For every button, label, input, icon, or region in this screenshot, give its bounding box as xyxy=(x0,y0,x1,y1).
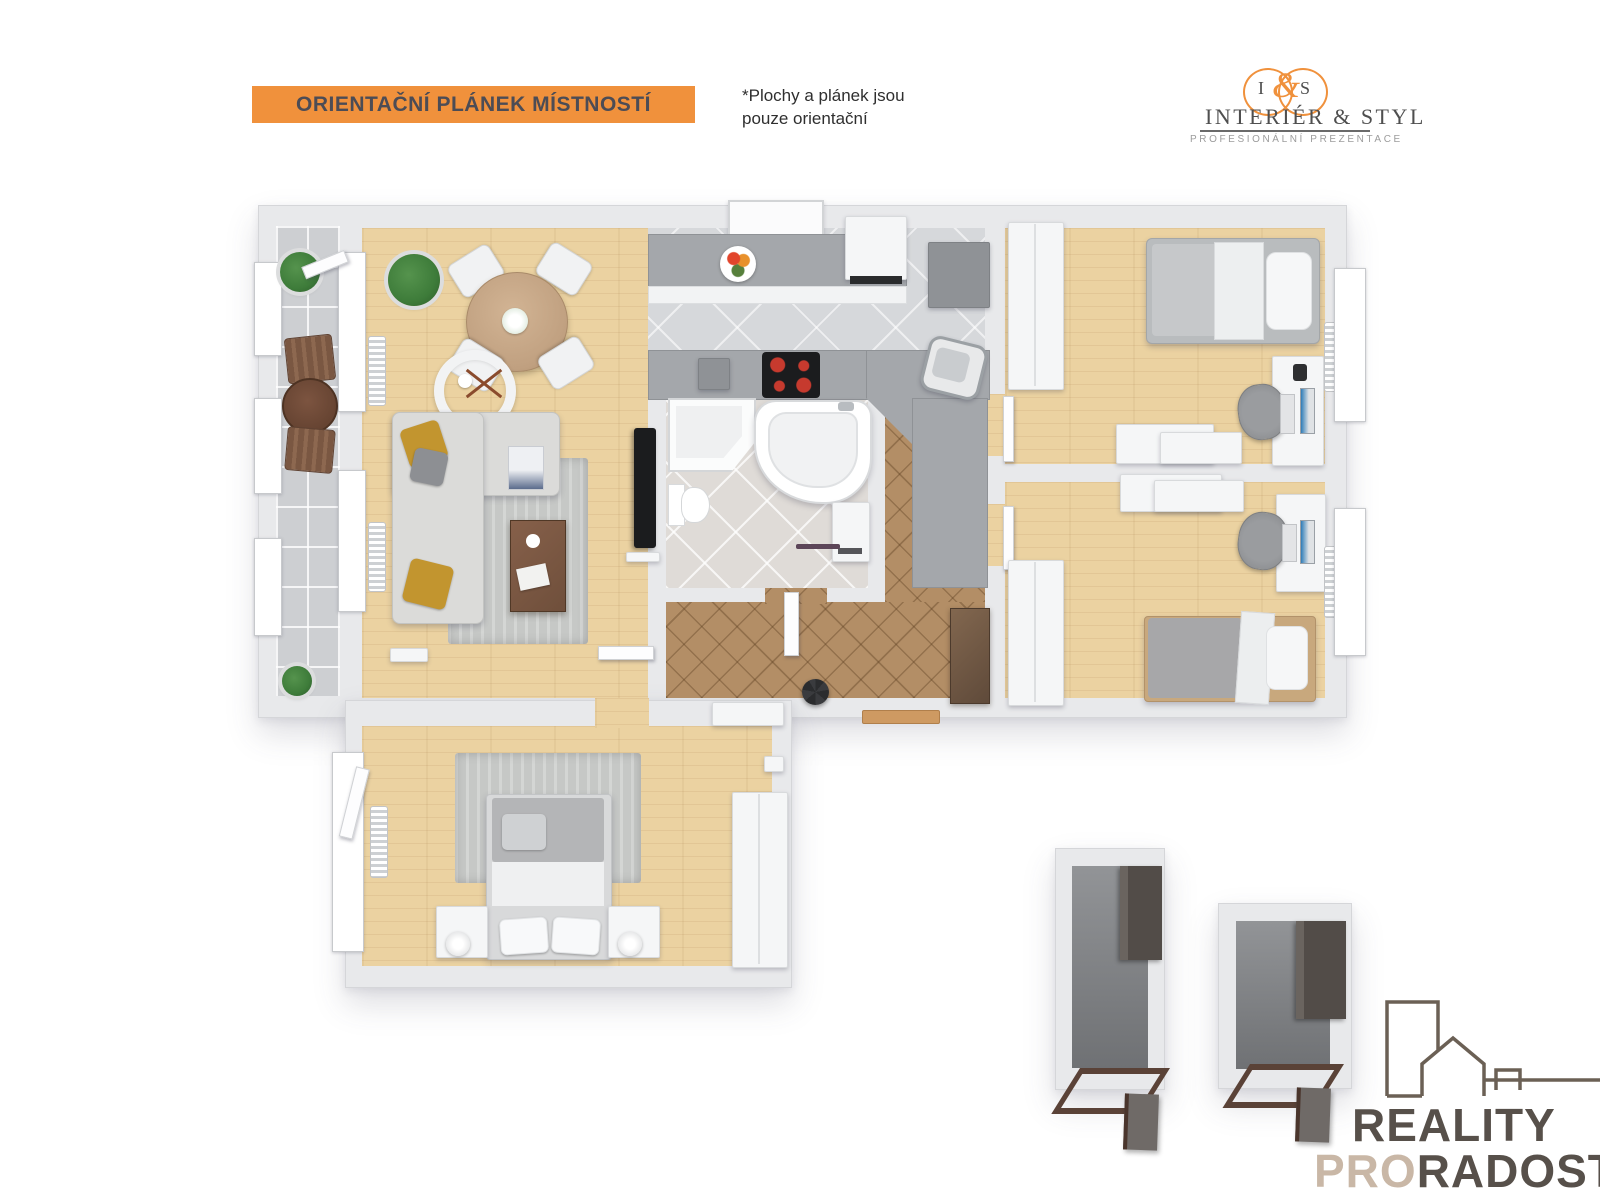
footer-brand-pro: PRO xyxy=(1314,1145,1417,1197)
sofa-pillow-gray xyxy=(409,447,449,487)
bedroom1-wardrobe xyxy=(1008,222,1064,390)
bedroom1-door-leaf xyxy=(1003,396,1014,462)
storage-unit-2-cabinet xyxy=(1296,921,1346,1019)
hall-coat-rack xyxy=(712,702,784,726)
bedroom1-wardrobe-split xyxy=(1034,224,1036,386)
bedroom1-blanket xyxy=(1214,242,1264,340)
kitchen-oven-unit xyxy=(845,216,907,280)
master-radiator xyxy=(370,806,388,878)
disclaimer-line-2: pouze orientační xyxy=(742,108,905,131)
storage-unit-1-doorleaf xyxy=(1123,1093,1159,1150)
divider-shelf-top-b xyxy=(1160,432,1242,464)
living-radiator-1 xyxy=(368,336,386,406)
fruit-bowl xyxy=(720,246,756,282)
hall-stool xyxy=(802,679,829,705)
floor-lamp-bulb xyxy=(458,374,472,388)
oven-handle xyxy=(850,276,902,284)
bedroom1-window xyxy=(1334,268,1366,422)
tv-shelf xyxy=(626,552,660,562)
divider-shelf-bottom-b xyxy=(1154,480,1244,512)
bedroom2-wardrobe xyxy=(1008,560,1064,706)
kitchen-appliance-cabinet xyxy=(928,242,990,308)
logo-title: INTERIÉR & STYL xyxy=(1205,104,1365,130)
toilet-bowl xyxy=(681,487,710,523)
kitchen-small-appliance xyxy=(698,358,730,390)
dining-table-vase xyxy=(502,308,528,334)
living-plant-icon xyxy=(388,254,440,306)
page-title: ORIENTAČNÍ PLÁNEK MÍSTNOSTÍ xyxy=(296,93,651,117)
bedroom1-keyboard xyxy=(1280,394,1295,434)
range-hood-vent xyxy=(728,200,824,238)
disclaimer-line-1: *Plochy a plánek jsou xyxy=(742,85,905,108)
door-opening-master xyxy=(595,698,649,728)
sofa-blanket xyxy=(508,446,544,490)
hall-shoe-cabinet xyxy=(950,608,990,704)
logo-monogram-left: I xyxy=(1258,78,1264,99)
bathroom-door-leaf xyxy=(784,592,799,656)
logo-subtitle: PROFESIONÁLNÍ PREZENTACE xyxy=(1190,134,1380,145)
bedroom2-pillow xyxy=(1266,626,1308,690)
kitchen-cabinet-front xyxy=(648,286,907,304)
towel-rail xyxy=(796,544,840,549)
title-banner: ORIENTAČNÍ PLÁNEK MÍSTNOSTÍ xyxy=(252,86,695,123)
studio-logo: I & S INTERIÉR & STYL PROFESIONÁLNÍ PREZ… xyxy=(1190,60,1380,150)
footer-brand-line2: PRORADOST xyxy=(1314,1144,1600,1198)
logo-monogram-ampersand: & xyxy=(1272,64,1300,106)
footer-brand-radost: RADOST xyxy=(1417,1145,1600,1197)
balcony-chair-2 xyxy=(284,426,336,474)
balcony-plant-2-icon xyxy=(282,666,312,696)
bathtub-faucet-icon xyxy=(838,402,854,411)
hall-wall-hook-icon xyxy=(764,756,784,772)
master-wardrobe xyxy=(732,792,788,968)
master-pillow-right xyxy=(551,916,601,955)
balcony-window-2 xyxy=(254,398,282,494)
tv-icon xyxy=(634,428,656,548)
living-radiator-2 xyxy=(368,522,386,592)
coffee-table-cup xyxy=(526,534,540,548)
floorplan-page: ORIENTAČNÍ PLÁNEK MÍSTNOSTÍ *Plochy a pl… xyxy=(0,0,1600,1199)
master-lamp-right-icon xyxy=(618,932,642,956)
entrance-doormat xyxy=(862,710,940,724)
door-opening-bedroom1 xyxy=(985,394,1005,456)
balcony-window-1 xyxy=(254,262,282,356)
master-door-leaf xyxy=(598,646,654,660)
cooktop xyxy=(762,352,820,398)
logo-monogram-right: S xyxy=(1300,78,1310,99)
master-wardrobe-split xyxy=(758,794,760,964)
living-balcony-door xyxy=(338,252,366,412)
kitchen-counter-column xyxy=(912,398,988,588)
door-opening-bedroom2 xyxy=(985,504,1005,566)
master-pillow-left xyxy=(499,916,549,955)
bedroom2-wardrobe-split xyxy=(1034,562,1036,702)
master-bed-sheet xyxy=(492,862,604,906)
bedroom2-monitor xyxy=(1300,520,1315,564)
city-skyline-icon xyxy=(1378,992,1600,1102)
storage-unit-1-cabinet xyxy=(1120,866,1162,960)
logo-divider xyxy=(1200,130,1370,132)
washer-slot xyxy=(838,548,862,554)
bedroom1-monitor xyxy=(1300,388,1315,434)
bedroom2-window xyxy=(1334,508,1366,656)
living-wall-shelf xyxy=(390,648,428,662)
bedroom1-desk-lamp xyxy=(1293,364,1307,381)
storage-unit-2-doorleaf xyxy=(1295,1087,1331,1142)
balcony-window-3 xyxy=(254,538,282,636)
master-bed-cushion xyxy=(502,814,546,850)
bedroom2-duvet xyxy=(1148,618,1242,698)
bedroom1-pillow xyxy=(1266,252,1312,330)
disclaimer-note: *Plochy a plánek jsou pouze orientační xyxy=(742,85,905,131)
bedroom2-keyboard xyxy=(1282,524,1297,562)
balcony-chair-1 xyxy=(284,334,337,385)
living-window-low xyxy=(338,470,366,612)
master-lamp-left-icon xyxy=(446,932,470,956)
